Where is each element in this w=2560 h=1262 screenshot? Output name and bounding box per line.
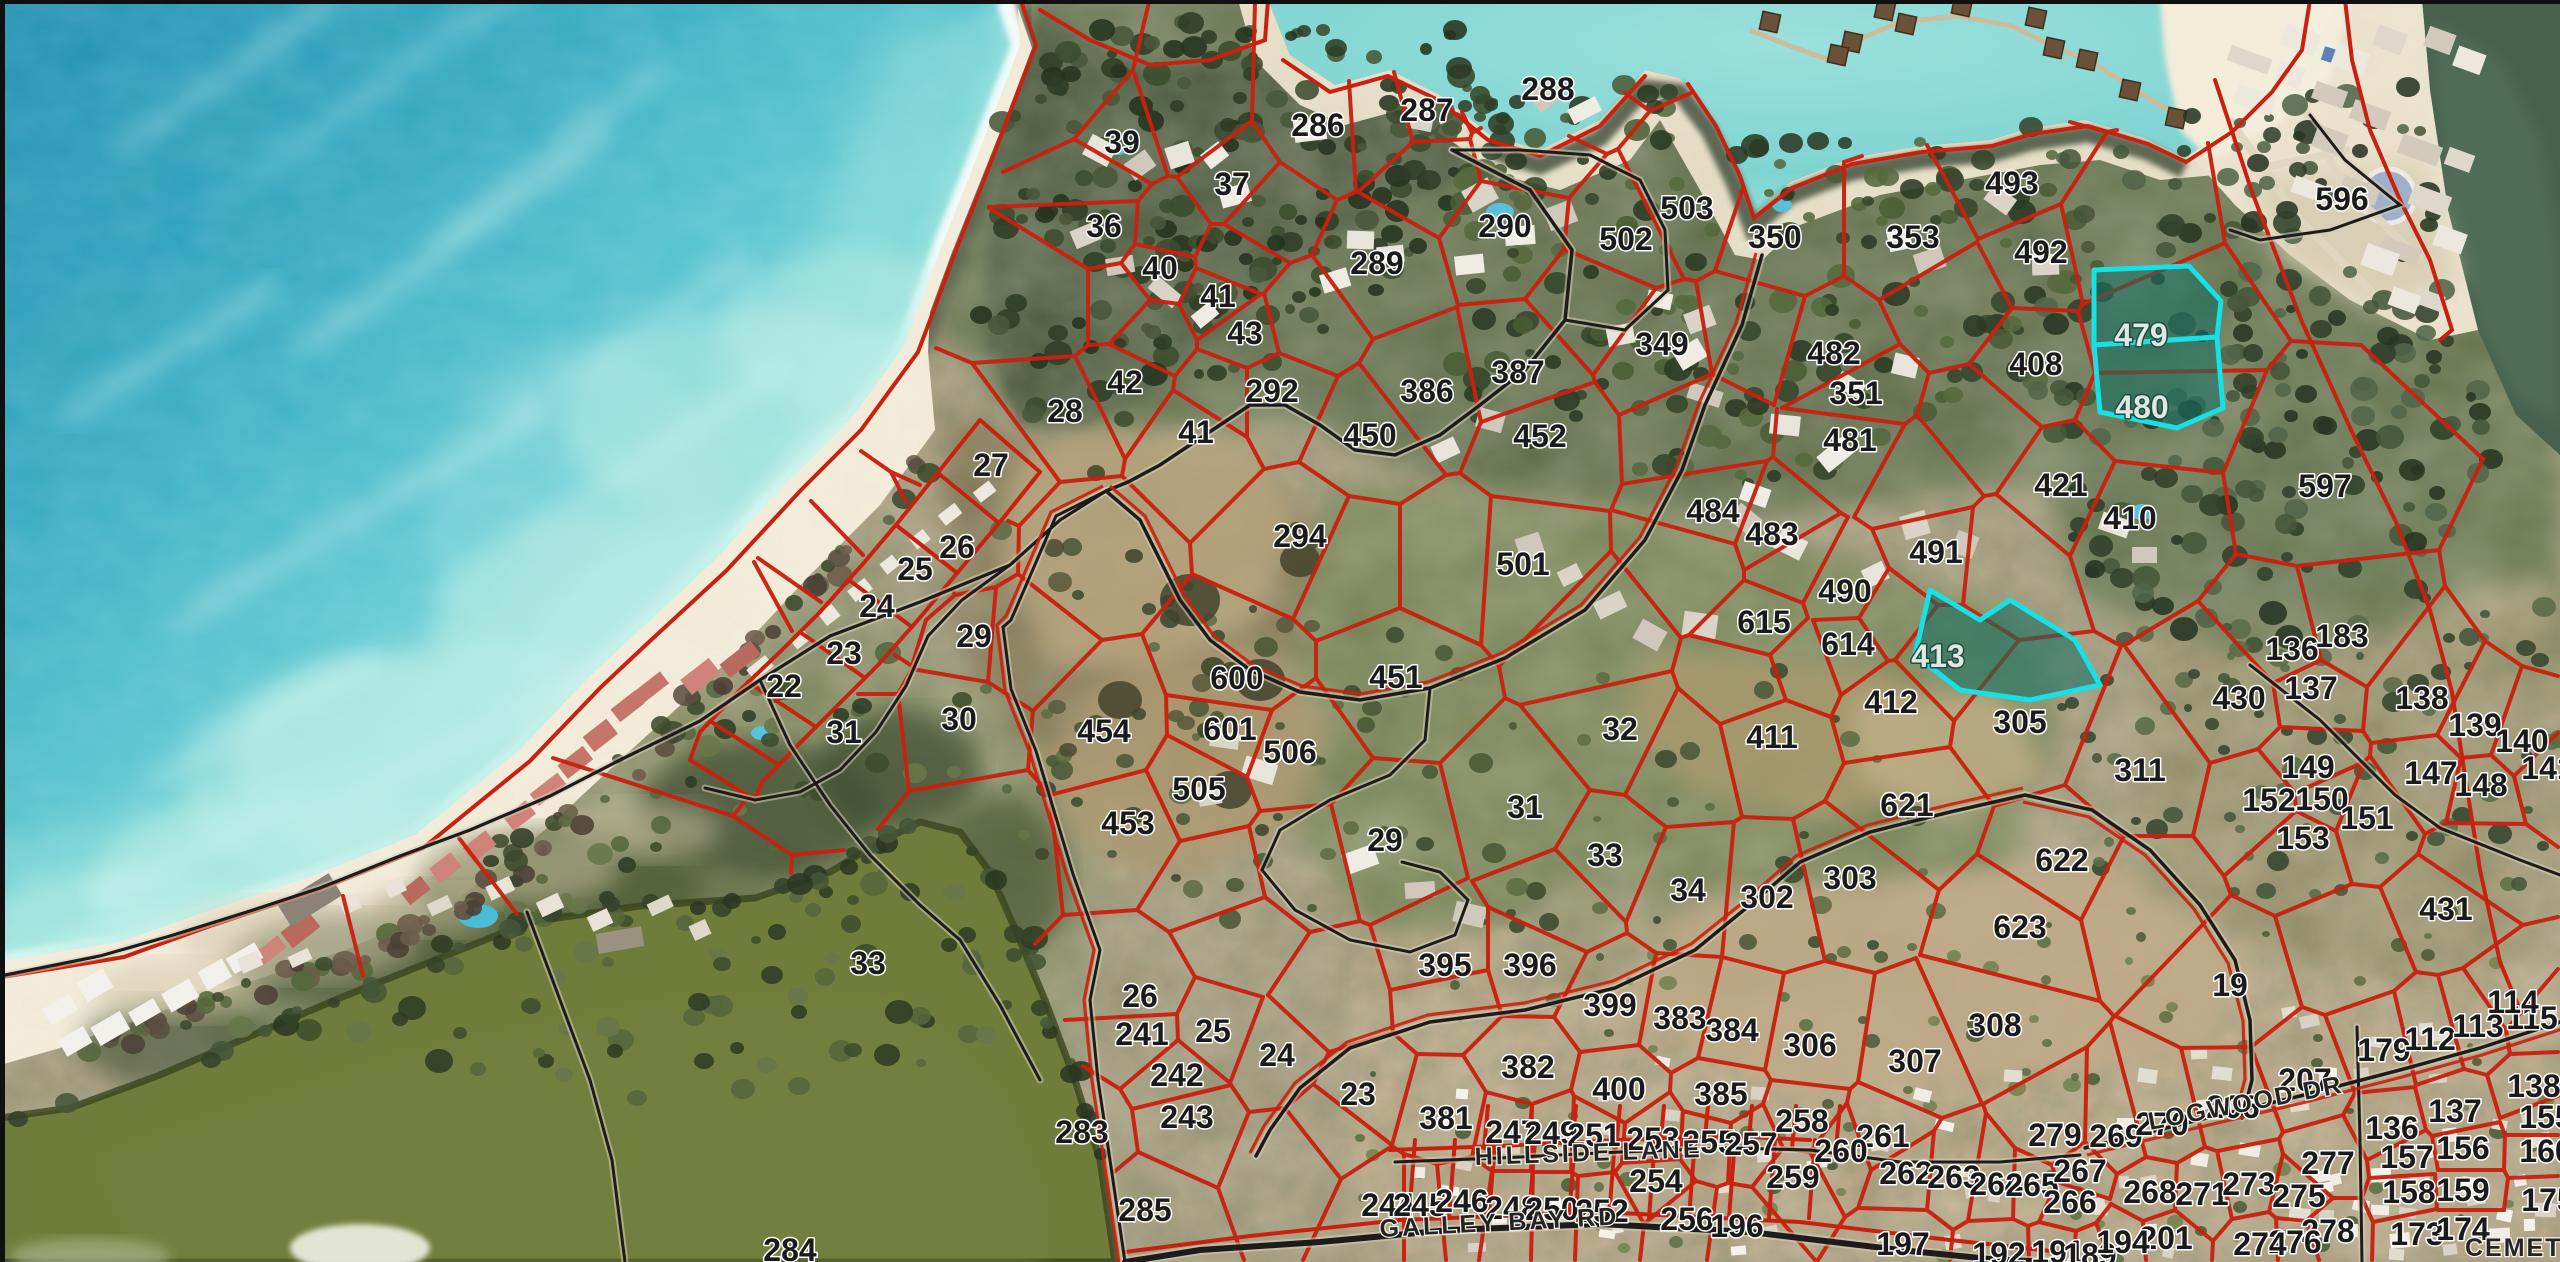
- svg-text:289: 289: [1350, 245, 1403, 281]
- svg-text:33: 33: [1587, 837, 1623, 873]
- svg-text:138: 138: [2395, 680, 2448, 716]
- svg-text:400: 400: [1592, 1071, 1645, 1107]
- svg-text:196: 196: [1710, 1208, 1763, 1244]
- svg-text:268: 268: [2123, 1174, 2176, 1210]
- svg-text:40: 40: [1142, 250, 1178, 286]
- svg-text:CEMETERY: CEMETERY: [2465, 1234, 2560, 1262]
- svg-text:24: 24: [859, 588, 895, 624]
- svg-text:387: 387: [1491, 354, 1544, 390]
- svg-text:152: 152: [2242, 782, 2295, 818]
- svg-text:39: 39: [1104, 124, 1140, 160]
- svg-text:26: 26: [939, 529, 975, 565]
- svg-text:29: 29: [956, 618, 992, 654]
- svg-text:288: 288: [1521, 71, 1574, 107]
- svg-text:259: 259: [1766, 1159, 1819, 1195]
- svg-text:22: 22: [766, 668, 802, 704]
- svg-text:25: 25: [897, 551, 933, 587]
- svg-text:453: 453: [1101, 805, 1154, 841]
- svg-text:33: 33: [850, 945, 886, 981]
- svg-text:114: 114: [2487, 984, 2539, 1020]
- svg-text:384: 384: [1705, 1012, 1759, 1048]
- svg-text:158: 158: [2382, 1174, 2435, 1210]
- svg-text:43: 43: [1227, 315, 1263, 351]
- svg-text:286: 286: [1291, 107, 1344, 143]
- svg-text:192: 192: [1972, 1236, 2025, 1262]
- svg-text:197: 197: [1876, 1226, 1929, 1262]
- svg-text:503: 503: [1660, 190, 1713, 226]
- svg-text:284: 284: [763, 1232, 817, 1262]
- svg-text:37: 37: [1214, 166, 1250, 202]
- svg-text:480: 480: [2115, 389, 2168, 425]
- svg-text:257: 257: [1724, 1126, 1777, 1162]
- svg-text:41: 41: [1200, 278, 1236, 314]
- svg-text:600: 600: [1210, 660, 1263, 696]
- svg-text:179: 179: [2357, 1032, 2410, 1068]
- svg-text:175: 175: [2521, 1182, 2560, 1218]
- svg-text:273: 273: [2222, 1166, 2275, 1202]
- svg-text:431: 431: [2419, 891, 2472, 927]
- svg-text:502: 502: [1599, 221, 1652, 257]
- svg-text:491: 491: [1909, 534, 1962, 570]
- svg-text:311: 311: [2114, 752, 2166, 788]
- svg-text:260: 260: [1814, 1133, 1867, 1169]
- svg-text:294: 294: [1273, 518, 1327, 554]
- svg-text:19: 19: [2212, 967, 2248, 1003]
- svg-text:36: 36: [1086, 208, 1122, 244]
- svg-text:484: 484: [1686, 493, 1740, 529]
- svg-text:396: 396: [1503, 947, 1556, 983]
- svg-text:26: 26: [1122, 978, 1158, 1014]
- svg-text:596: 596: [2315, 181, 2368, 217]
- svg-text:241: 241: [1115, 1016, 1168, 1052]
- svg-text:151: 151: [2340, 800, 2393, 836]
- svg-text:382: 382: [1501, 1049, 1554, 1085]
- svg-text:383: 383: [1653, 1000, 1706, 1036]
- svg-text:492: 492: [2014, 234, 2067, 270]
- svg-text:451: 451: [1369, 659, 1422, 695]
- svg-text:157: 157: [2380, 1139, 2433, 1175]
- svg-text:385: 385: [1694, 1076, 1747, 1112]
- svg-text:279: 279: [2028, 1117, 2081, 1153]
- svg-text:275: 275: [2272, 1178, 2325, 1214]
- svg-text:399: 399: [1583, 987, 1636, 1023]
- svg-text:28: 28: [1047, 393, 1083, 429]
- svg-text:292: 292: [1245, 373, 1298, 409]
- svg-text:139: 139: [2448, 707, 2501, 743]
- svg-text:194: 194: [2096, 1224, 2150, 1260]
- svg-text:24: 24: [1259, 1037, 1295, 1073]
- svg-text:506: 506: [1263, 734, 1316, 770]
- svg-text:349: 349: [1635, 326, 1688, 362]
- svg-text:137: 137: [2284, 670, 2337, 706]
- svg-text:183: 183: [2315, 618, 2368, 654]
- svg-text:242: 242: [1150, 1057, 1203, 1093]
- svg-text:454: 454: [1077, 713, 1131, 749]
- svg-text:493: 493: [1985, 165, 2038, 201]
- svg-text:353: 353: [1886, 219, 1939, 255]
- svg-text:147: 147: [2404, 755, 2457, 791]
- svg-text:137: 137: [2428, 1093, 2481, 1129]
- svg-text:148: 148: [2454, 767, 2507, 803]
- svg-text:41: 41: [1178, 414, 1214, 450]
- svg-text:136: 136: [2265, 631, 2318, 667]
- svg-text:408: 408: [2009, 346, 2062, 382]
- svg-text:256: 256: [1660, 1201, 1713, 1237]
- svg-text:479: 479: [2114, 317, 2167, 353]
- svg-text:450: 450: [1343, 417, 1396, 453]
- svg-text:601: 601: [1203, 711, 1256, 747]
- svg-text:623: 623: [1993, 909, 2046, 945]
- svg-text:243: 243: [1160, 1099, 1213, 1135]
- svg-text:306: 306: [1783, 1027, 1836, 1063]
- svg-text:156: 156: [2436, 1130, 2489, 1166]
- svg-text:395: 395: [1418, 947, 1471, 983]
- svg-text:29: 29: [1367, 822, 1403, 858]
- svg-text:283: 283: [1055, 1114, 1108, 1150]
- svg-text:421: 421: [2034, 467, 2087, 503]
- svg-text:266: 266: [2043, 1184, 2096, 1220]
- svg-text:501: 501: [1496, 546, 1549, 582]
- svg-text:410: 410: [2103, 500, 2156, 536]
- svg-text:25: 25: [1195, 1013, 1231, 1049]
- svg-text:287: 287: [1400, 92, 1453, 128]
- svg-text:481: 481: [1823, 422, 1876, 458]
- svg-text:149: 149: [2281, 749, 2334, 785]
- svg-text:31: 31: [1507, 789, 1543, 825]
- svg-text:452: 452: [1513, 418, 1566, 454]
- svg-text:159: 159: [2436, 1172, 2489, 1208]
- svg-text:413: 413: [1911, 638, 1964, 674]
- svg-text:153: 153: [2276, 820, 2329, 856]
- svg-text:305: 305: [1993, 704, 2046, 740]
- svg-text:112: 112: [2404, 1021, 2456, 1057]
- svg-text:34: 34: [1670, 872, 1706, 908]
- svg-text:597: 597: [2298, 468, 2351, 504]
- svg-text:274: 274: [2233, 1226, 2287, 1262]
- svg-text:23: 23: [826, 635, 862, 671]
- svg-text:262: 262: [1879, 1155, 1932, 1191]
- svg-text:350: 350: [1748, 219, 1801, 255]
- svg-text:277: 277: [2301, 1145, 2354, 1181]
- svg-text:32: 32: [1602, 711, 1638, 747]
- svg-text:412: 412: [1864, 684, 1917, 720]
- svg-text:483: 483: [1745, 516, 1798, 552]
- svg-text:386: 386: [1400, 373, 1453, 409]
- svg-text:307: 307: [1888, 1043, 1941, 1079]
- svg-text:302: 302: [1740, 879, 1793, 915]
- svg-text:411: 411: [1746, 719, 1798, 755]
- svg-text:430: 430: [2212, 680, 2265, 716]
- svg-text:254: 254: [1629, 1163, 1683, 1199]
- svg-text:23: 23: [1340, 1076, 1376, 1112]
- svg-text:308: 308: [1968, 1007, 2021, 1043]
- svg-text:31: 31: [826, 714, 862, 750]
- svg-text:482: 482: [1807, 335, 1860, 371]
- svg-text:490: 490: [1818, 573, 1871, 609]
- svg-text:160: 160: [2519, 1133, 2560, 1169]
- svg-text:621: 621: [1880, 787, 1933, 823]
- svg-text:351: 351: [1829, 375, 1882, 411]
- svg-text:141: 141: [2521, 750, 2560, 786]
- svg-text:505: 505: [1172, 771, 1225, 807]
- svg-text:30: 30: [941, 701, 977, 737]
- svg-text:290: 290: [1478, 208, 1531, 244]
- svg-text:622: 622: [2035, 842, 2088, 878]
- svg-text:614: 614: [1821, 626, 1875, 662]
- svg-text:615: 615: [1737, 604, 1790, 640]
- svg-text:303: 303: [1823, 860, 1876, 896]
- svg-text:155: 155: [2519, 1099, 2560, 1135]
- svg-text:271: 271: [2175, 1176, 2228, 1212]
- svg-text:381: 381: [1419, 1100, 1472, 1136]
- svg-text:42: 42: [1107, 364, 1143, 400]
- svg-text:285: 285: [1118, 1192, 1171, 1228]
- svg-text:27: 27: [973, 447, 1009, 483]
